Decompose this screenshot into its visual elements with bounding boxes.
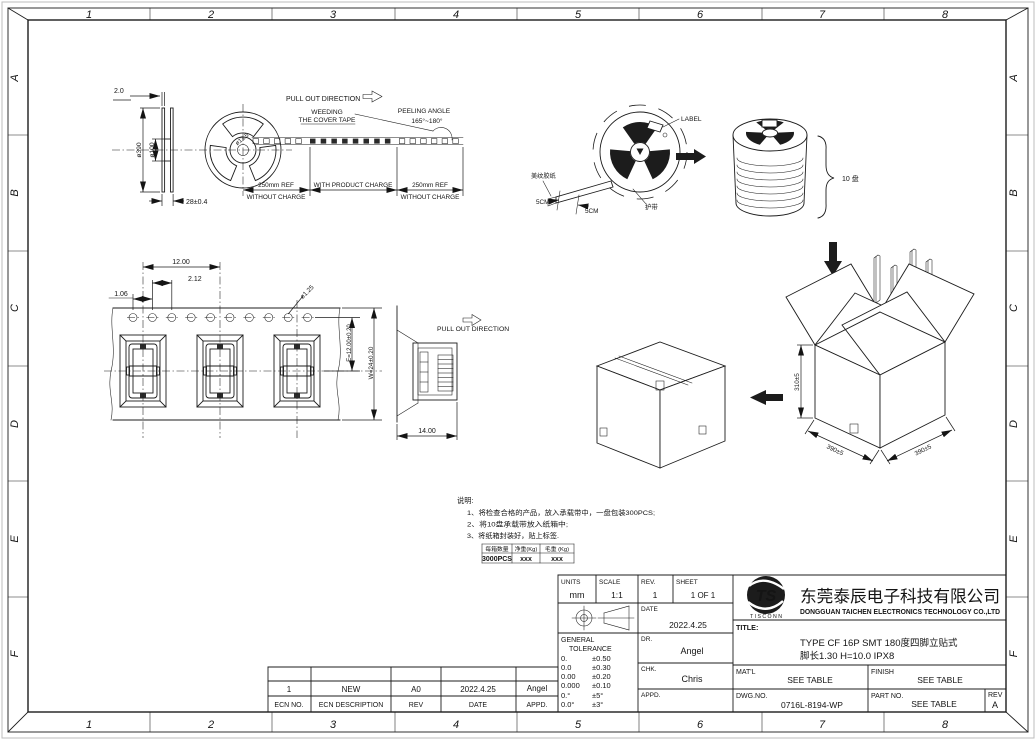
note-line-2: 2、将10盘承载带放入纸箱中;: [467, 520, 568, 529]
dim-box-height: 310±5: [794, 373, 801, 391]
dim-flange-thickness: 2.0: [114, 88, 124, 95]
protective-tape-label: 护带: [645, 202, 658, 211]
zone-col: 1: [86, 9, 92, 21]
zone-col: 8: [942, 9, 949, 21]
logo-wordmark: T I S C O N N: [750, 614, 782, 620]
rev-cell-label: REV: [988, 692, 1003, 699]
closed-box-view: [597, 342, 783, 468]
qty-value-per-box: 3000PCS: [482, 556, 512, 563]
zone-row: C: [1008, 304, 1020, 312]
ecn-rev: A0: [411, 685, 421, 694]
rev-value: 1: [653, 590, 658, 600]
tol-value: ±0.20: [592, 672, 611, 681]
zone-col: 6: [697, 9, 704, 21]
tol-value: ±0.50: [592, 654, 611, 663]
finish-label: FINISH: [871, 669, 894, 676]
tol-basis: 0.00: [561, 672, 576, 681]
zone-row: A: [1008, 74, 1020, 82]
stacked-reel-edges: [737, 158, 803, 208]
dim-reel-hub-dia: ø100: [149, 142, 156, 158]
ecn-entry-row: 1 NEW A0 2022.4.25 Angel: [287, 684, 548, 694]
masking-tape-label: 美纹胶纸: [531, 172, 556, 180]
notes-title: 说明:: [457, 496, 473, 505]
scale-value: 1:1: [611, 590, 623, 600]
reel-tail-tape: [556, 181, 613, 203]
dr-value: Angel: [680, 646, 703, 656]
tol-basis: 0.: [561, 654, 567, 663]
dim-1-06: 1.06: [114, 291, 128, 298]
zone-row: B: [1008, 189, 1020, 196]
quantity-table: 每箱数量 净重(Kg) 毛重 (Kg) 3000PCS xxx xxx: [482, 544, 574, 563]
zone-col: 2: [207, 9, 214, 21]
zone-row: E: [1008, 535, 1020, 543]
projection-symbol: [572, 606, 634, 630]
ecn-description: NEW: [342, 685, 361, 694]
segment-left-label: 250mm REF: [258, 182, 294, 189]
note-line-1: 1、将检查合格的产品，放入承载带中，一盘包装300PCS;: [467, 508, 655, 517]
dim-box-depth: 390±5: [914, 443, 933, 457]
dim-e: E=12.00±0.20: [347, 324, 353, 362]
chk-value: Chris: [681, 674, 703, 684]
tol-value: ±0.10: [592, 681, 611, 690]
qty-value-net: xxx: [520, 556, 532, 563]
peeling-angle-value: 165°~180°: [411, 117, 442, 125]
tol-value: ±0.30: [592, 663, 611, 672]
dr-label: DR.: [641, 636, 652, 643]
drawing-canvas: 1 2 3 4 5 6 7 8 1 2 3 4 5 6 7 8 A B C D …: [0, 0, 1036, 740]
sprocket-holes: [127, 314, 314, 322]
zone-row: F: [1008, 649, 1020, 657]
zone-col: 3: [330, 719, 337, 731]
label-callout: LABEL: [681, 116, 702, 123]
ecn-header-row: ECN NO. ECN DESCRIPTION REV DATE APPD.: [274, 702, 547, 709]
drawing-title-line2: 脚长1.30 H=10.0 IPX8: [800, 650, 894, 662]
ecn-table: 1 NEW A0 2022.4.25 Angel ECN NO. ECN DES…: [268, 667, 558, 712]
ecn-date: 2022.4.25: [460, 685, 496, 694]
qty-header-per-box: 每箱数量: [485, 545, 508, 553]
stack-brace: [818, 136, 834, 218]
zone-row: F: [9, 649, 21, 657]
company-logo: TS T I S C O N N: [747, 576, 785, 620]
zone-col: 4: [453, 719, 459, 731]
tape-pockets-loaded: [310, 139, 390, 144]
zone-col: 3: [330, 9, 337, 21]
zone-row: C: [9, 304, 21, 312]
date-value: 2022.4.25: [669, 620, 707, 630]
reel-stack-view: 10 盘: [733, 119, 859, 218]
zone-row: D: [1008, 420, 1020, 428]
general-tolerance-label-2: TOLERANCE: [569, 646, 612, 653]
rev-cell-value: A: [992, 700, 998, 710]
dwg-no-value: 0716L-8194-WP: [781, 700, 843, 710]
dim-w: W=24±0.20: [368, 346, 375, 379]
tol-basis: 0.0: [561, 663, 571, 672]
carrier-tape-top-view: 12.00 2.12 1.06 ø1.25 E=12.00±0.20 W=24±…: [104, 259, 382, 438]
zone-row: D: [9, 420, 21, 428]
tol-value: ±5°: [592, 691, 603, 700]
part-no-value: SEE TABLE: [911, 699, 957, 709]
ecn-header-description: ECN DESCRIPTION: [319, 702, 384, 709]
tol-basis: 0.0°: [561, 700, 574, 709]
weeding-label-line2: THE COVER TAPE: [299, 117, 357, 124]
pull-out-direction-label-2: PULL OUT DIRECTION: [437, 326, 509, 333]
dim-5cm-right: 5CM: [585, 208, 599, 215]
pull-out-arrow-icon-2: [463, 315, 481, 326]
part-no-label: PART NO.: [871, 693, 903, 700]
engineering-drawing-sheet: 1 2 3 4 5 6 7 8 1 2 3 4 5 6 7 8 A B C D …: [0, 0, 1036, 740]
segment-right-sublabel: WITHOUT CHARGE: [401, 194, 460, 201]
appd-label: APPD.: [641, 692, 661, 699]
ecn-appd: Angel: [527, 684, 548, 693]
finish-value: SEE TABLE: [917, 675, 963, 685]
notes-block: 说明: 1、将检查合格的产品，放入承载带中，一盘包装300PCS; 2、将10盘…: [457, 496, 655, 540]
pull-out-arrow-icon: [363, 91, 382, 102]
date-label: DATE: [641, 606, 659, 613]
pull-out-direction-label: PULL OUT DIRECTION: [286, 96, 360, 103]
tol-value: ±3°: [592, 700, 603, 709]
sheet-label: SHEET: [676, 579, 698, 586]
logo-monogram: TS: [756, 588, 777, 605]
ecn-header-rev: REV: [409, 702, 424, 709]
dim-reel-outer-dia: ø390: [136, 142, 143, 158]
rev-label: REV.: [641, 579, 656, 586]
dim-tape-height: 14.00: [418, 428, 436, 435]
zone-row: E: [9, 535, 21, 543]
tol-basis: 0.°: [561, 691, 570, 700]
stack-quantity-label: 10 盘: [842, 174, 859, 183]
stack-label-sticker: [762, 120, 777, 127]
ecn-header-no: ECN NO.: [274, 702, 303, 709]
zone-col: 5: [575, 719, 582, 731]
zone-col: 8: [942, 719, 949, 731]
ecn-header-appd: APPD.: [526, 702, 547, 709]
note-line-3: 3、将纸箱封装好，贴上标签.: [467, 531, 559, 540]
zone-col: 5: [575, 9, 582, 21]
scale-label: SCALE: [599, 579, 621, 586]
ecn-header-date: DATE: [469, 702, 487, 709]
ecn-no: 1: [287, 685, 292, 694]
zone-col: 7: [819, 9, 826, 21]
general-tolerance-label-1: GENERAL: [561, 637, 595, 644]
zone-col: 1: [86, 719, 92, 731]
segment-right-label: 250mm REF: [412, 182, 448, 189]
zone-col: 7: [819, 719, 826, 731]
peeling-angle-label: PEELING ANGLE: [398, 108, 451, 115]
tol-basis: 0.000: [561, 681, 580, 690]
company-name-cn: 东莞泰辰电子科技有限公司: [800, 587, 1000, 606]
dim-box-width: 390±5: [825, 444, 844, 458]
segment-left-sublabel: WITHOUT CHARGE: [247, 194, 306, 201]
qty-value-gross: xxx: [551, 556, 563, 563]
zone-col: 6: [697, 719, 704, 731]
chk-label: CHK.: [641, 666, 657, 673]
tape-break-right: [337, 308, 340, 420]
packing-reel-view: LABEL 5CM 5CM 美纹胶纸 护带: [531, 105, 706, 215]
zone-row: A: [9, 74, 21, 82]
matl-value: SEE TABLE: [787, 675, 833, 685]
peeling-arc: [433, 127, 452, 140]
zone-col: 2: [207, 719, 214, 731]
weeding-label-line1: WEEDING: [311, 109, 343, 116]
segment-mid-label: WITH PRODUCT CHARGE: [314, 182, 393, 189]
zone-row: B: [9, 189, 21, 196]
dim-reel-width: 28±0.4: [186, 199, 207, 206]
dim-pitch: 12.00: [172, 259, 190, 266]
company-name-en: DONGGUAN TAICHEN ELECTRONICS TECHNOLOGY …: [800, 607, 1001, 616]
matl-label: MAT'L: [736, 669, 756, 676]
flow-arrow-right-icon: [676, 149, 706, 164]
zone-col: 4: [453, 9, 459, 21]
drawing-title-line1: TYPE CF 16P SMT 180度四脚立贴式: [800, 637, 958, 649]
units-label: UNITS: [561, 579, 581, 586]
sheet-value: 1 OF 1: [691, 591, 716, 600]
qty-header-net: 净重(Kg): [515, 545, 538, 553]
dwg-no-label: DWG.NO.: [736, 693, 768, 700]
tolerance-list: 0.±0.50 0.0±0.30 0.00±0.20 0.000±0.10 0.…: [561, 654, 611, 709]
qty-header-gross: 毛重 (Kg): [545, 545, 569, 553]
dim-2-12: 2.12: [188, 276, 202, 283]
dim-sprocket-hole-dia: ø1.25: [299, 284, 316, 301]
dim-5cm-left: 5CM: [536, 199, 550, 206]
carrier-tape-side-view: 14.00 PULL OUT DIRECTION: [397, 306, 509, 440]
flow-arrow-left-icon: [750, 390, 783, 405]
tape-break-left: [110, 308, 113, 420]
units-value: mm: [570, 590, 585, 600]
title-block: UNITS mm SCALE 1:1 REV. 1 SHEET 1 OF 1 D…: [558, 575, 1006, 712]
title-label: TITLE:: [736, 623, 758, 632]
